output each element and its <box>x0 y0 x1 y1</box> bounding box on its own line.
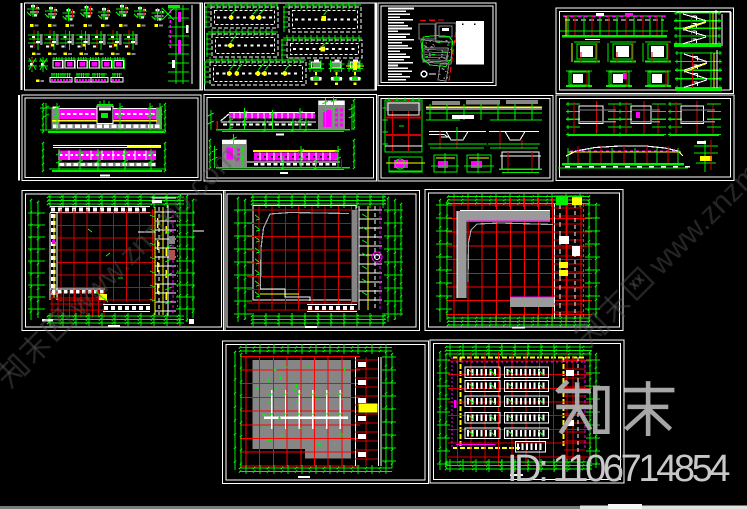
svg-text:ID: 1106714854: ID: 1106714854 <box>507 448 730 490</box>
